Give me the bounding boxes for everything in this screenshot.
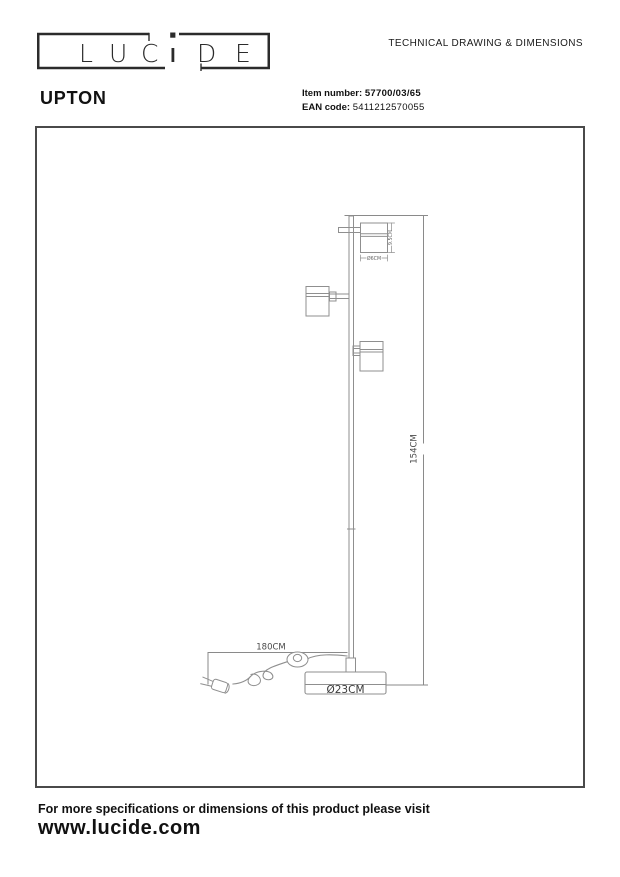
logo-letter-i-dot (170, 33, 175, 38)
spot-head-middle-left (306, 287, 349, 317)
document-title: TECHNICAL DRAWING & DIMENSIONS (388, 38, 583, 49)
logo-letter-e: E (235, 39, 251, 68)
ean-label: EAN code: (302, 102, 350, 113)
logo-letter-d: D (197, 39, 216, 68)
spot-arm-right-joint (353, 346, 360, 356)
dimension-base-diameter-label: Ø23CM (326, 684, 364, 696)
item-number-value: 57700/03/65 (365, 88, 421, 99)
footer-note: For more specifications or dimensions of… (38, 802, 430, 816)
lamp-pole (348, 216, 356, 658)
dimension-head-diameter-label: Ø6CM (367, 255, 381, 262)
logo-border-gap-bottom (165, 66, 201, 73)
ean-row: EAN code: 5411212570055 (302, 101, 425, 115)
spot-head-top (339, 223, 388, 253)
spot-head-middle-right (353, 342, 383, 372)
product-name: UPTON (40, 88, 107, 109)
dimension-head-height-label: 9.5CM (388, 230, 394, 245)
lucide-logo: L U C D E (37, 32, 270, 72)
power-plug (200, 675, 230, 694)
technical-drawing: 154CM 180CM 9.5CM (37, 128, 583, 786)
item-number-row: Item number: 57700/03/65 (302, 87, 425, 101)
logo-letters: L U C D E (79, 33, 251, 69)
drawing-frame: 154CM 180CM 9.5CM (35, 126, 585, 788)
dimension-height-label: 154CM (410, 434, 420, 464)
logo-letter-i (172, 48, 175, 62)
ean-value: 5411212570055 (353, 102, 425, 113)
spot-arm-left-joint (330, 292, 337, 301)
dimension-cable-label: 180CM (256, 643, 286, 653)
foot-switch (287, 652, 308, 667)
logo-letter-c: C (141, 39, 158, 68)
item-number-label: Item number: (302, 88, 362, 99)
website-link[interactable]: www.lucide.com (38, 817, 201, 840)
cable-coil (248, 674, 260, 686)
logo-letter-l: L (79, 39, 93, 68)
plug-pin-bottom (201, 683, 212, 687)
pole-collar (346, 658, 356, 672)
logo-letter-u: U (109, 39, 127, 68)
product-identifiers: Item number: 57700/03/65 EAN code: 54112… (302, 87, 425, 114)
